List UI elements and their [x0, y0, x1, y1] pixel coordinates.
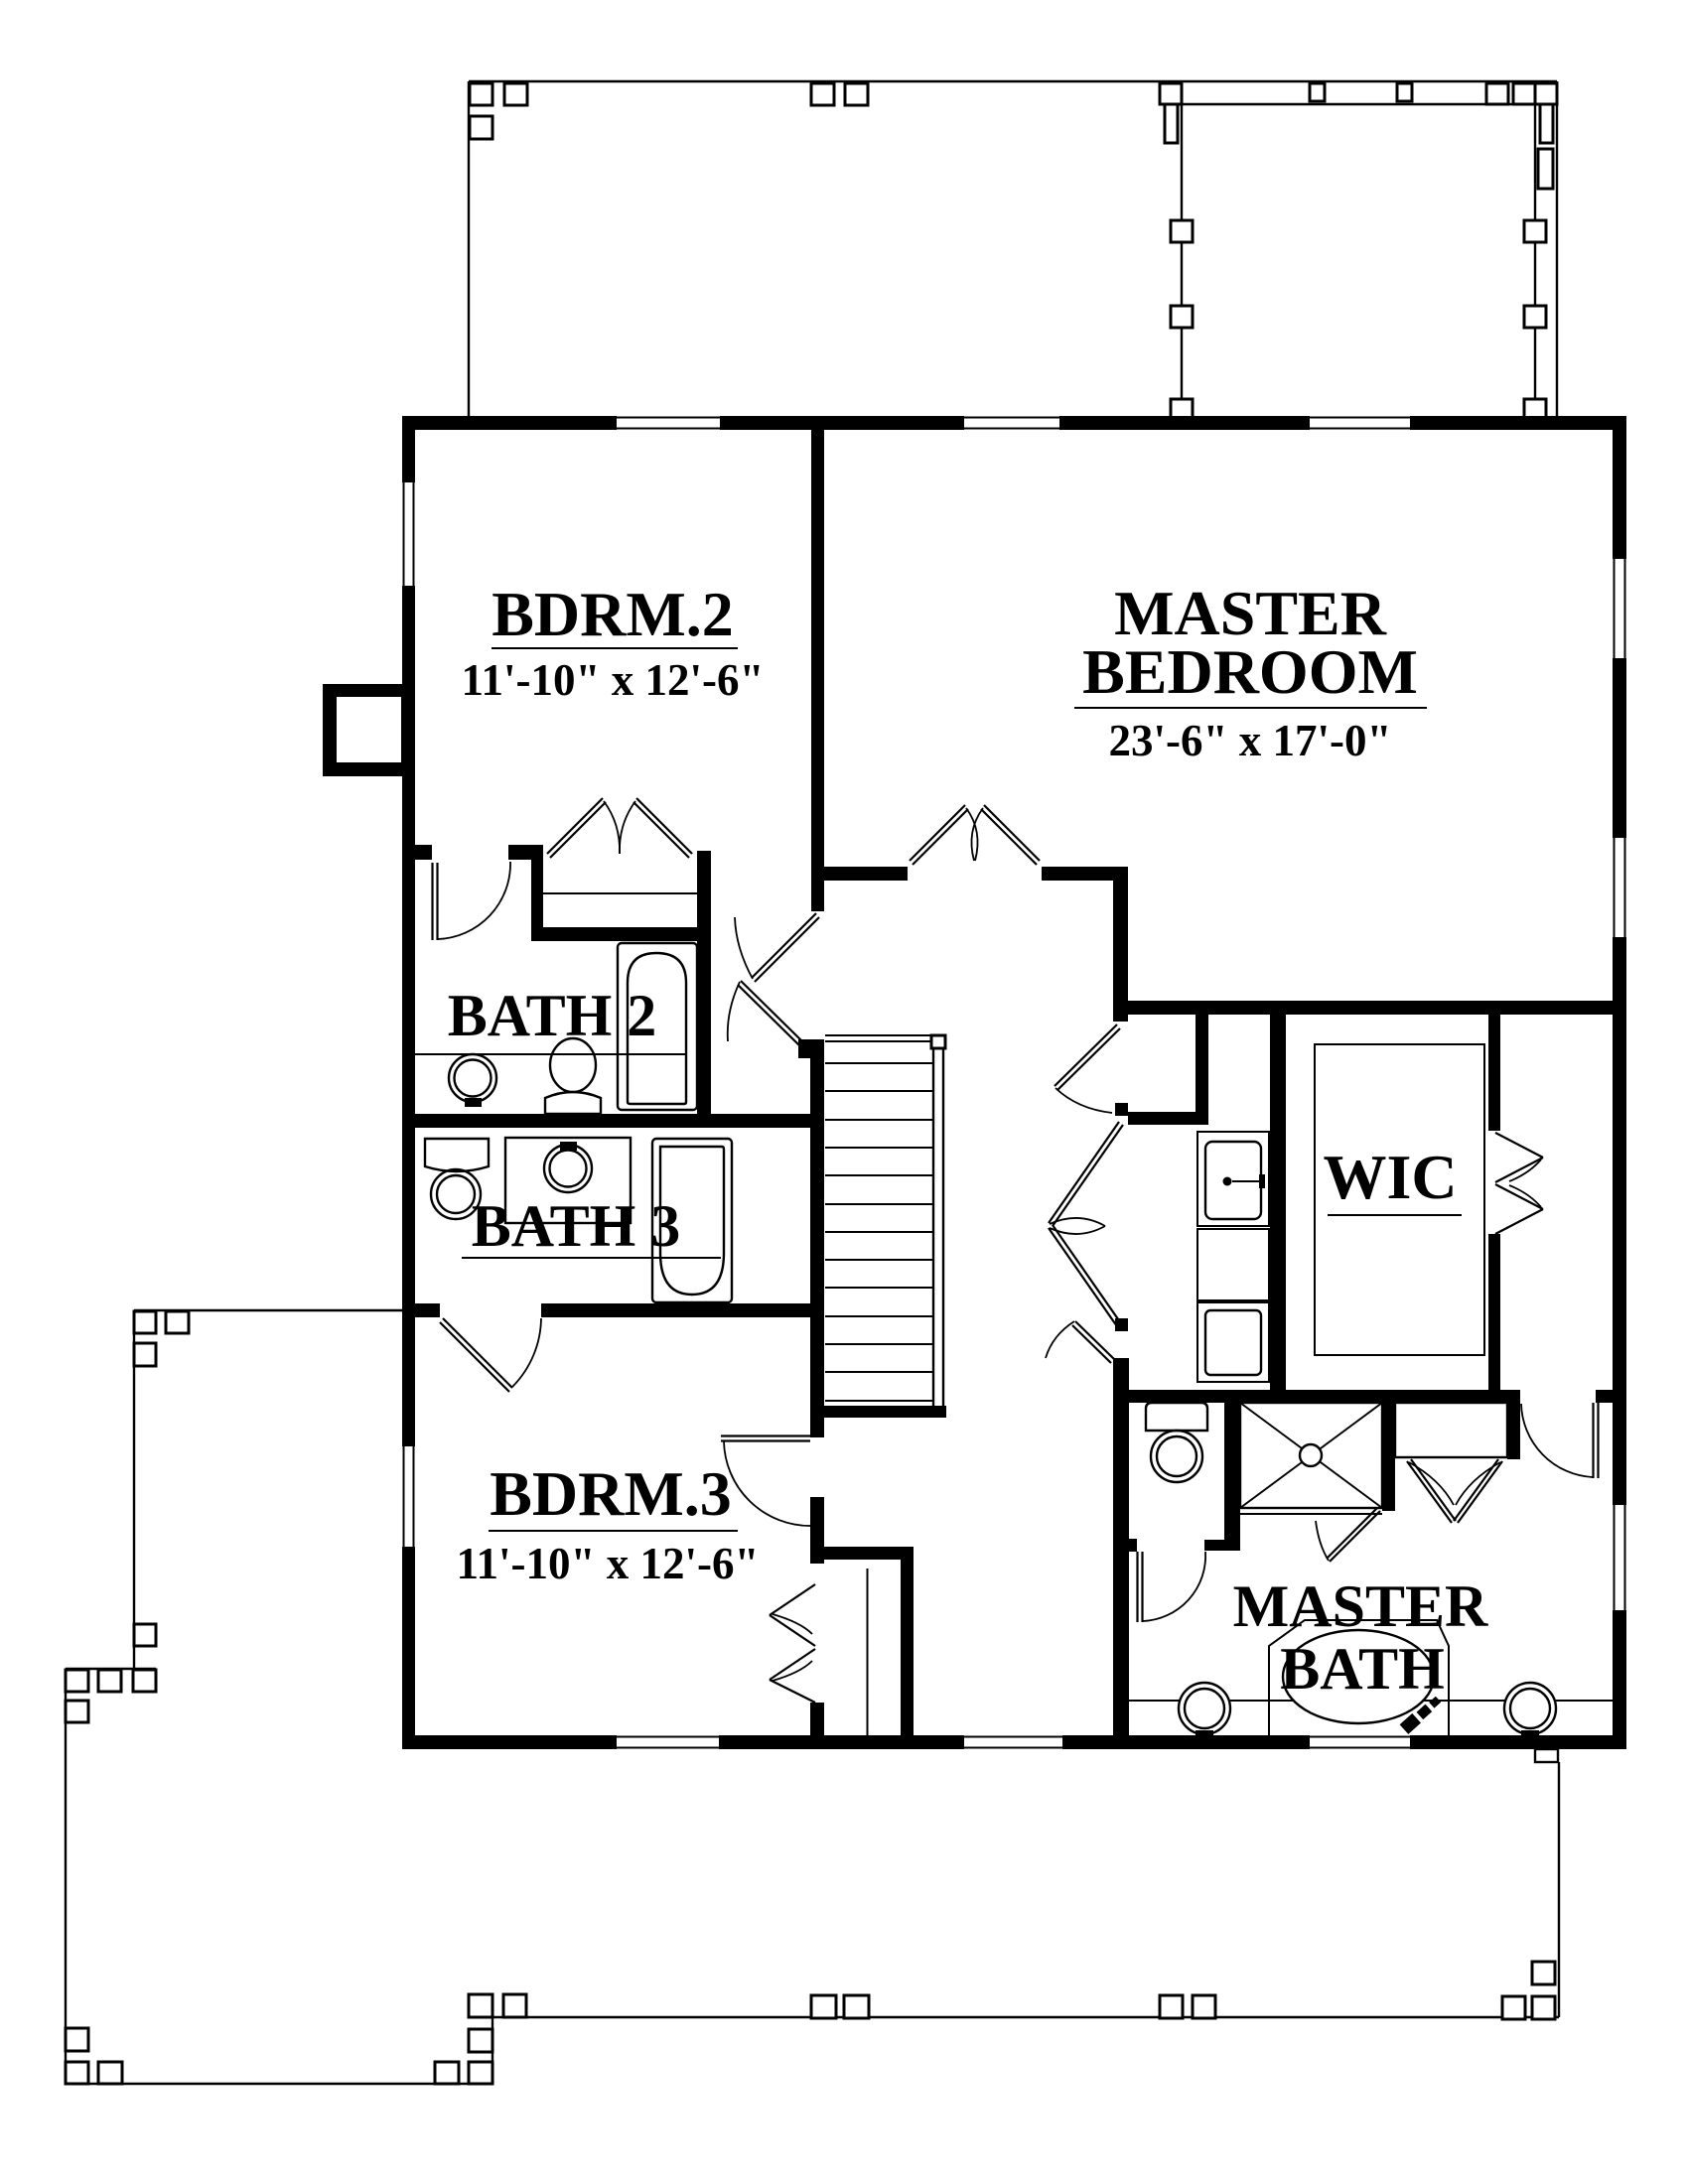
svg-text:BDRM.2: BDRM.2	[492, 579, 734, 649]
svg-text:11'-10" x 12'-6": 11'-10" x 12'-6"	[457, 1539, 760, 1588]
svg-text:23'-6" x 17'-0": 23'-6" x 17'-0"	[1109, 716, 1392, 765]
svg-text:BATH: BATH	[1280, 1636, 1445, 1702]
svg-text:BDRM.3: BDRM.3	[490, 1458, 732, 1529]
svg-text:BATH 3: BATH 3	[472, 1193, 681, 1259]
svg-text:BEDROOM: BEDROOM	[1082, 636, 1418, 707]
svg-text:MASTER: MASTER	[1233, 1573, 1488, 1639]
svg-text:WIC: WIC	[1323, 1142, 1457, 1212]
svg-text:BATH 2: BATH 2	[448, 983, 657, 1048]
svg-text:11'-10" x 12'-6": 11'-10" x 12'-6"	[462, 655, 765, 705]
